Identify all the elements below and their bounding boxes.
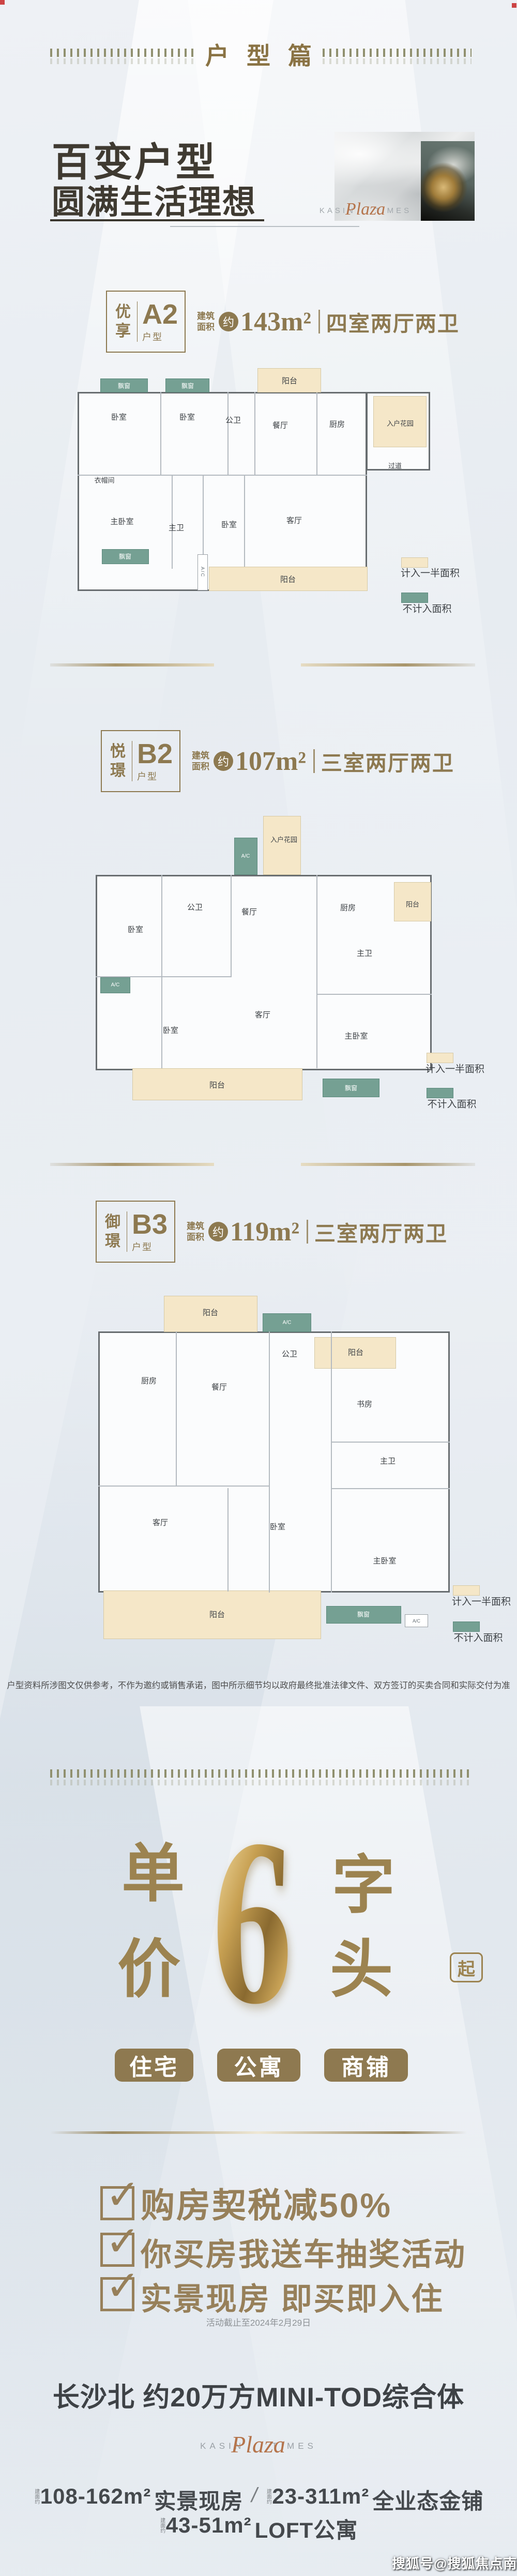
plan-badge-type: 户型 [142,330,178,343]
floorplan-label-不计入面积: 不计入面积 [402,601,451,615]
section-title: 户型篇 [0,37,517,71]
floorplan-line [331,1488,450,1489]
floorplan-line [227,392,229,476]
floorplan-label-餐厅: 餐厅 [211,1382,227,1392]
plan-badge-code: B3 [132,1210,168,1238]
floorplan-label-衣帽间: 衣帽间 [94,475,114,485]
area-prefix-line1: 建筑 [192,750,209,761]
floorplan-label-阳台: 阳台 [203,1307,218,1318]
floorplan-beige [263,816,301,875]
area-value: 107m² [235,746,306,777]
offer-item-3: 实景现房 即买即入住 [141,2274,444,2319]
offer-item-1: 购房契税减50% [141,2178,392,2228]
floorplan-label-卧室: 卧室 [163,1025,178,1036]
floorplan-acw-A/C: A/C [405,1614,428,1627]
checkbox-icon: ✓ [100,2277,134,2311]
floorplan-label-餐厅: 餐厅 [272,420,288,431]
stat-value-1: 108-162m² [40,2484,151,2509]
plan-b3-header: 御璟 B3 户型 建筑 面积 约 119m² 三室两厅两卫 [96,1201,489,1268]
floorplan-divr [301,663,475,666]
floorplan-wall [96,875,432,1070]
floorplan-label-公卫: 公卫 [225,415,241,426]
area-prefix: 建筑 面积 [197,311,215,333]
area-note: 建面约 [265,2489,270,2504]
wave-dash-divider [50,1769,472,1778]
headline-underline-light [170,226,359,227]
floorplan-divl [50,1163,214,1166]
floorplan-line [316,392,317,476]
stat-separator: / [251,2484,257,2507]
floorplan-label-计入一半面积: 计入一半面积 [401,566,460,580]
floorplan-label-入户花园: 入户花园 [387,418,414,428]
plan-badge-right: B2 户型 [137,740,173,783]
price-qi-box: 起 [450,1952,483,1982]
floorplan-labelw-A/C: A/C [111,982,120,988]
hero-image-inset [421,141,475,221]
layout-label: 三室两厅两卫 [321,746,454,777]
approx-circle: 约 [219,312,238,331]
offer-item-2: 你买房我送车抽奖活动 [141,2230,466,2275]
floorplan-label-客厅: 客厅 [286,515,302,526]
floorplan-label-阳台: 阳台 [209,1609,225,1620]
poster-page: 户型篇 百变户型 圆满生活理想 KASIN Plaza TIMES 优享 A2 … [0,0,517,2576]
plan-badge-tag: 御璟 [103,1213,122,1251]
floorplan-label-主卧室: 主卧室 [110,516,133,527]
floorplan-label-卧室: 卧室 [270,1521,285,1532]
floorplan-line [176,1331,177,1487]
wave-dash-reflection [50,1780,472,1785]
gold-divider [50,2131,467,2134]
disclaimer-text: 户型资料所涉图文仅供参考，不作为邀约或销售承诺，图中所示细节均以政府最终批准法律… [0,1678,517,1691]
approx-circle: 约 [208,1222,228,1241]
floorplan-label-厨房: 厨房 [329,419,345,430]
floorplan-label-计入一半面积: 计入一半面积 [452,1594,511,1608]
stat-label-1: 实景现房 [154,2484,243,2516]
floorplan-labelw-飘窗: 飘窗 [119,552,131,561]
floorplan-label-卧室: 卧室 [179,412,195,422]
area-value: 119m² [230,1217,299,1247]
floorplan-label-主卫: 主卫 [357,948,372,959]
plan-badge-code: B2 [137,740,173,768]
brand-logo-small: KASIN Plaza TIMES [306,201,425,220]
plan-badge-divider [137,301,138,342]
floorplan-line [227,1488,229,1592]
plan-info-row: 建筑 面积 约 119m² 三室两厅两卫 [187,1216,448,1247]
floorplan-label-主卧室: 主卧室 [373,1555,396,1566]
plan-badge-divider [132,741,132,781]
price-char-dan: 单 [121,1842,185,1905]
badge-apartment: 公寓 [217,2049,300,2082]
price-char-tou: 头 [330,1938,393,2001]
floorplan-label-阳台: 阳台 [209,1080,225,1090]
badge-shop: 商铺 [324,2049,408,2082]
plan-badge-right: A2 户型 [142,300,178,343]
floorplan-label-不计入面积: 不计入面积 [427,1097,476,1111]
headline-underline-dark [50,219,264,221]
plan-badge-divider [127,1211,127,1252]
floorplan-line [98,1486,270,1487]
floorplan-acv-A/C: A/C [197,554,208,590]
floorplan-label-入户花园: 入户花园 [270,835,297,844]
stat-value-3: 43-51m² [166,2513,252,2538]
check-icon: ✓ [105,2221,140,2262]
area-prefix-line1: 建筑 [187,1221,204,1232]
floorplan-line [316,994,432,995]
floorplan-line [269,1331,270,1593]
floorplan-labelw-飘窗: 飘窗 [357,1610,370,1619]
floorplan-label-公卫: 公卫 [282,1348,297,1359]
floorplan-label-主卫: 主卫 [380,1456,396,1466]
price-digit-6: 6 [210,1824,295,2019]
floorplan-label-阳台: 阳台 [348,1347,363,1358]
floorplan-line [331,1442,450,1443]
plan-info-row: 建筑 面积 约 107m² 三室两厅两卫 [192,746,454,777]
area-value: 143m² [240,307,311,337]
plan-badge-right: B3 户型 [132,1210,168,1253]
floorplan-label-主卫: 主卫 [169,522,184,533]
floorplan-line [254,392,255,476]
stats-row-2: 建面约 43-51m² LOFT公寓 [0,2513,517,2544]
corner-artifact [512,3,516,8]
floorplan-labelw-飘窗: 飘窗 [118,382,130,390]
info-divider [313,749,315,773]
floorplan-label-过道: 过道 [388,461,402,471]
price-char-jia: 价 [117,1938,180,2001]
checkbox-icon: ✓ [100,2233,134,2267]
floorplan-label-书房: 书房 [357,1399,372,1410]
plan-badge: 御璟 B3 户型 [96,1201,175,1263]
floorplan-label-客厅: 客厅 [255,1009,270,1020]
area-prefix: 建筑 面积 [187,1221,204,1243]
floorplan-label-客厅: 客厅 [153,1517,168,1528]
floorplan-label-厨房: 厨房 [141,1375,157,1386]
floorplan-label-卧室: 卧室 [111,412,127,422]
floorplan-labelw-A/C: A/C [283,1320,292,1326]
floorplan-label-卧室: 卧室 [128,924,143,935]
floorplan-label-阳台: 阳台 [406,899,419,909]
logo-script: Plaza [231,2431,285,2458]
floorplan-divr [301,1163,475,1166]
offer-deadline: 活动截止至2024年2月29日 [0,2315,517,2328]
info-divider [307,1220,308,1244]
plan-badge-type: 户型 [132,1240,168,1253]
area-prefix-line2: 面积 [197,322,215,332]
stat-label-3: LOFT公寓 [255,2513,358,2544]
floorplan-label-计入一半面积: 计入一半面积 [425,1062,484,1075]
checkbox-icon: ✓ [100,2186,134,2220]
stat-label-2: 全业态金铺 [372,2484,483,2516]
corner-artifact [0,0,5,5]
floorplan-line [78,475,367,476]
area-prefix-line2: 面积 [192,761,209,772]
check-icon: ✓ [105,2174,140,2216]
headline-line2: 圆满生活理想 [52,176,256,223]
layout-label: 三室两厅两卫 [314,1216,448,1247]
floorplan-line [316,875,317,1068]
floorplan-line [331,1331,332,1593]
plan-badge-tag: 悦璟 [109,742,127,781]
floorplan-label-不计入面积: 不计入面积 [453,1630,503,1644]
plan-badge: 悦璟 B2 户型 [101,730,180,792]
stat-value-2: 23-311m² [272,2484,369,2509]
floorplan-label-主卧室: 主卧室 [344,1031,368,1041]
floorplan-labelw-飘窗: 飘窗 [181,382,194,390]
floorplan-label-厨房: 厨房 [340,902,356,913]
approx-circle: 约 [214,751,233,771]
plan-badge-code: A2 [142,300,178,328]
area-prefix-line2: 面积 [187,1232,204,1242]
floorplan-label-阳台: 阳台 [282,375,297,386]
badge-residence: 住宅 [115,2049,193,2082]
info-divider [318,310,320,334]
layout-label: 四室两厅两卫 [326,306,460,337]
plan-info-row: 建筑 面积 约 143m² 四室两厅两卫 [197,306,460,337]
floorplan-line [96,976,231,977]
floorplan-label-公卫: 公卫 [187,902,203,913]
area-note: 建面约 [159,2518,164,2533]
floorplan-labelw-A/C: A/C [241,854,250,859]
floorplan-label-餐厅: 餐厅 [241,906,257,917]
floorplan-label-阳台: 阳台 [280,574,296,585]
floorplan-line [161,875,162,1068]
plan-badge-tag: 优享 [114,302,132,341]
floorplan-labelw-飘窗: 飘窗 [345,1084,357,1093]
plan-a2-header: 优享 A2 户型 建筑 面积 约 143m² 四室两厅两卫 [106,291,499,358]
plan-badge-type: 户型 [137,769,173,783]
stats-row-1: 建面约 108-162m² 实景现房 / 建面约 23-311m² 全业态金铺 [0,2484,517,2516]
area-note: 建面约 [34,2489,39,2504]
brand-logo-large: KASIN Plaza TIMES [0,2432,517,2460]
plan-badge: 优享 A2 户型 [106,291,186,353]
area-prefix: 建筑 面积 [192,750,209,772]
logo-script: Plaza [345,200,385,219]
watermark: 搜狐号@搜狐焦点南平站 [392,2553,517,2572]
price-char-zi: 字 [332,1854,395,1917]
plan-b2-header: 悦璟 B2 户型 建筑 面积 约 107m² 三室两厅两卫 [101,730,494,797]
floorplan-wall [98,1331,450,1593]
area-prefix-line1: 建筑 [197,311,215,322]
floorplan-label-卧室: 卧室 [221,519,237,530]
project-tagline: 长沙北 约20万方MINI-TOD综合体 [0,2375,517,2414]
check-icon: ✓ [105,2265,140,2307]
floorplan-line [231,875,232,977]
floorplan-divl [50,663,214,666]
floorplan-line [160,392,161,476]
